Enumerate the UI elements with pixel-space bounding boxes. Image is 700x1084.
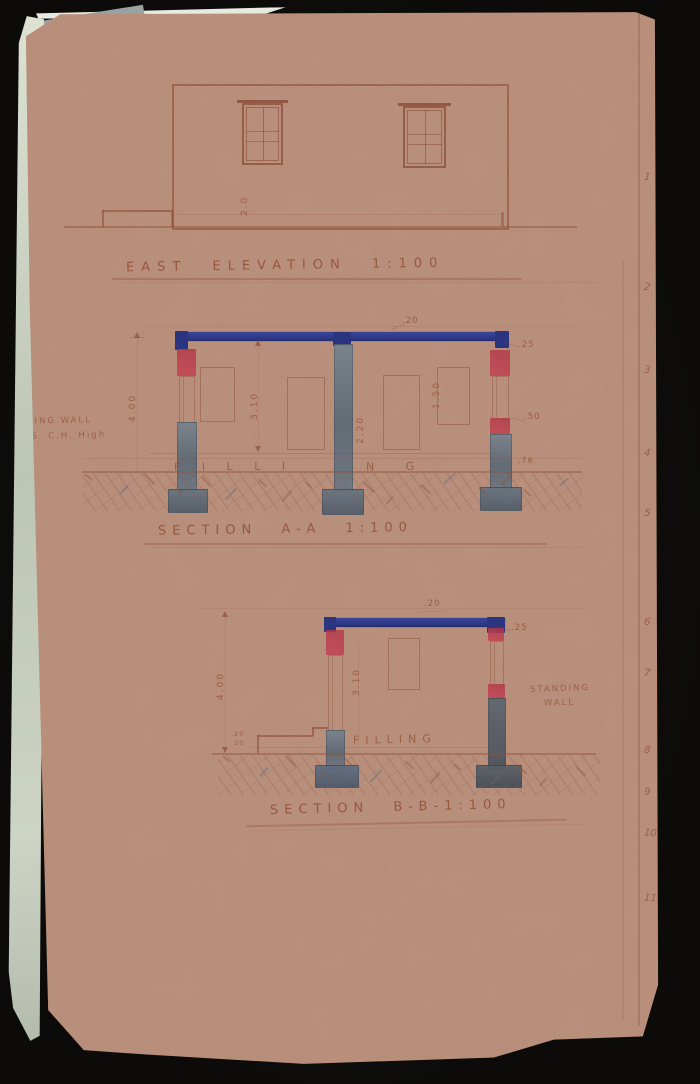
window-glazing-bar <box>407 134 442 135</box>
standing-wall-note-line2: WALL <box>544 697 576 708</box>
elevation-step-riser <box>102 210 104 227</box>
dim-block: .50 <box>524 412 541 422</box>
column-b-red-left <box>326 630 344 655</box>
column-shaft-left <box>179 376 195 424</box>
margin-number: 11 <box>643 892 657 904</box>
column-shaft-right <box>492 376 509 420</box>
elevation-window-left <box>242 103 283 165</box>
floor-line-2 <box>84 458 582 459</box>
opening-window-b <box>388 638 420 690</box>
section-a-underline-2 <box>152 547 584 548</box>
dim-beam: .25 <box>518 340 535 350</box>
dim-beam-b: .25 <box>511 623 528 633</box>
elevation-ground-line <box>64 226 577 228</box>
filling-label-left: F I L L I <box>174 459 294 473</box>
page-fold-crease-2 <box>622 260 624 1020</box>
column-b-red-cap-right <box>488 628 504 641</box>
elevation-plinth-line <box>173 214 504 215</box>
faint-guide-line <box>140 326 580 327</box>
filling-label-b: FILLING <box>353 732 437 746</box>
step-tread-1 <box>257 735 313 737</box>
filling-label-right: N G <box>366 460 428 474</box>
margin-number: 3 <box>643 365 650 377</box>
faint-guide-line-b <box>202 608 584 609</box>
section-a-underline <box>144 543 546 545</box>
column-red-block-right-lower <box>490 418 510 434</box>
dim-total-height-b: 4.00 <box>216 672 226 700</box>
beam-end-cap-right <box>495 331 509 348</box>
beam-end-cap-left <box>175 331 188 350</box>
window-glazing-bar <box>407 144 442 145</box>
dim-arrow-31-dn <box>255 446 261 452</box>
drawing-paper: 1234567891011 <box>24 10 660 1066</box>
dim-floor: .76 <box>518 456 534 465</box>
column-grey-center <box>334 344 353 492</box>
margin-number: 10 <box>643 827 657 839</box>
column-b-shaft-right <box>490 641 504 687</box>
margin-number: 8 <box>643 745 650 757</box>
step-tread-2 <box>312 727 328 729</box>
filling-base-line <box>250 747 496 748</box>
section-b-roof-beam <box>325 618 505 627</box>
dim-step-1: .20 <box>231 730 244 738</box>
dim-roof: .20 <box>402 316 419 326</box>
column-b-shaft-left <box>328 655 343 732</box>
opening-door-2 <box>383 375 420 450</box>
dim-clear-height: 3.10 <box>250 392 260 420</box>
margin-number: 9 <box>643 787 650 799</box>
dim-window-height: 1.50 <box>432 381 442 409</box>
margin-number: 1 <box>643 172 650 184</box>
window-mullion <box>263 107 264 161</box>
column-red-block-right <box>490 350 510 376</box>
window-glazing-bar <box>246 131 279 132</box>
margin-number: 5 <box>643 508 650 520</box>
margin-number: 4 <box>643 448 650 460</box>
standing-wall-note-line1: STANDING <box>530 683 590 695</box>
opening-window-1 <box>200 367 235 422</box>
opening-door-1 <box>287 377 325 450</box>
dim-total-height: 4.00 <box>128 394 138 422</box>
dim-step-2: .20 <box>231 739 244 747</box>
dim-roof-b: .20 <box>424 599 441 609</box>
dim-arrow-4m-b <box>222 611 228 617</box>
margin-number: 6 <box>643 617 650 629</box>
page-fold-crease <box>638 14 640 1026</box>
elevation-window-right <box>403 106 446 168</box>
column-b-red-right-lower <box>488 684 505 698</box>
elevation-height-dim: 2.0 <box>240 196 250 216</box>
dim-arrow-31-up <box>255 340 261 346</box>
floor-line-1 <box>150 453 508 454</box>
margin-number: 7 <box>643 668 650 680</box>
margin-note-line1: DING WALL <box>26 415 92 427</box>
step-riser-1 <box>257 735 259 753</box>
scanned-drawing-page: 1234567891011 <box>0 0 700 1084</box>
elevation-title-underline-2 <box>120 282 598 283</box>
dim-arrow-4m <box>134 332 140 338</box>
margin-number: 2 <box>643 282 650 294</box>
column-red-block-left <box>177 349 196 376</box>
window-glazing-bar <box>246 141 279 142</box>
window-mullion <box>425 110 426 164</box>
dim-clear-height-b: 3.10 <box>352 668 362 696</box>
elevation-corner-tick-left <box>171 212 174 227</box>
elevation-corner-tick-right <box>501 212 504 227</box>
dim-door-height: 2.20 <box>356 416 366 444</box>
elevation-title-underline <box>112 278 522 280</box>
ground-hatch-band-b <box>218 755 600 795</box>
elevation-step-top <box>102 210 173 212</box>
elevation-building-outline <box>172 84 509 230</box>
